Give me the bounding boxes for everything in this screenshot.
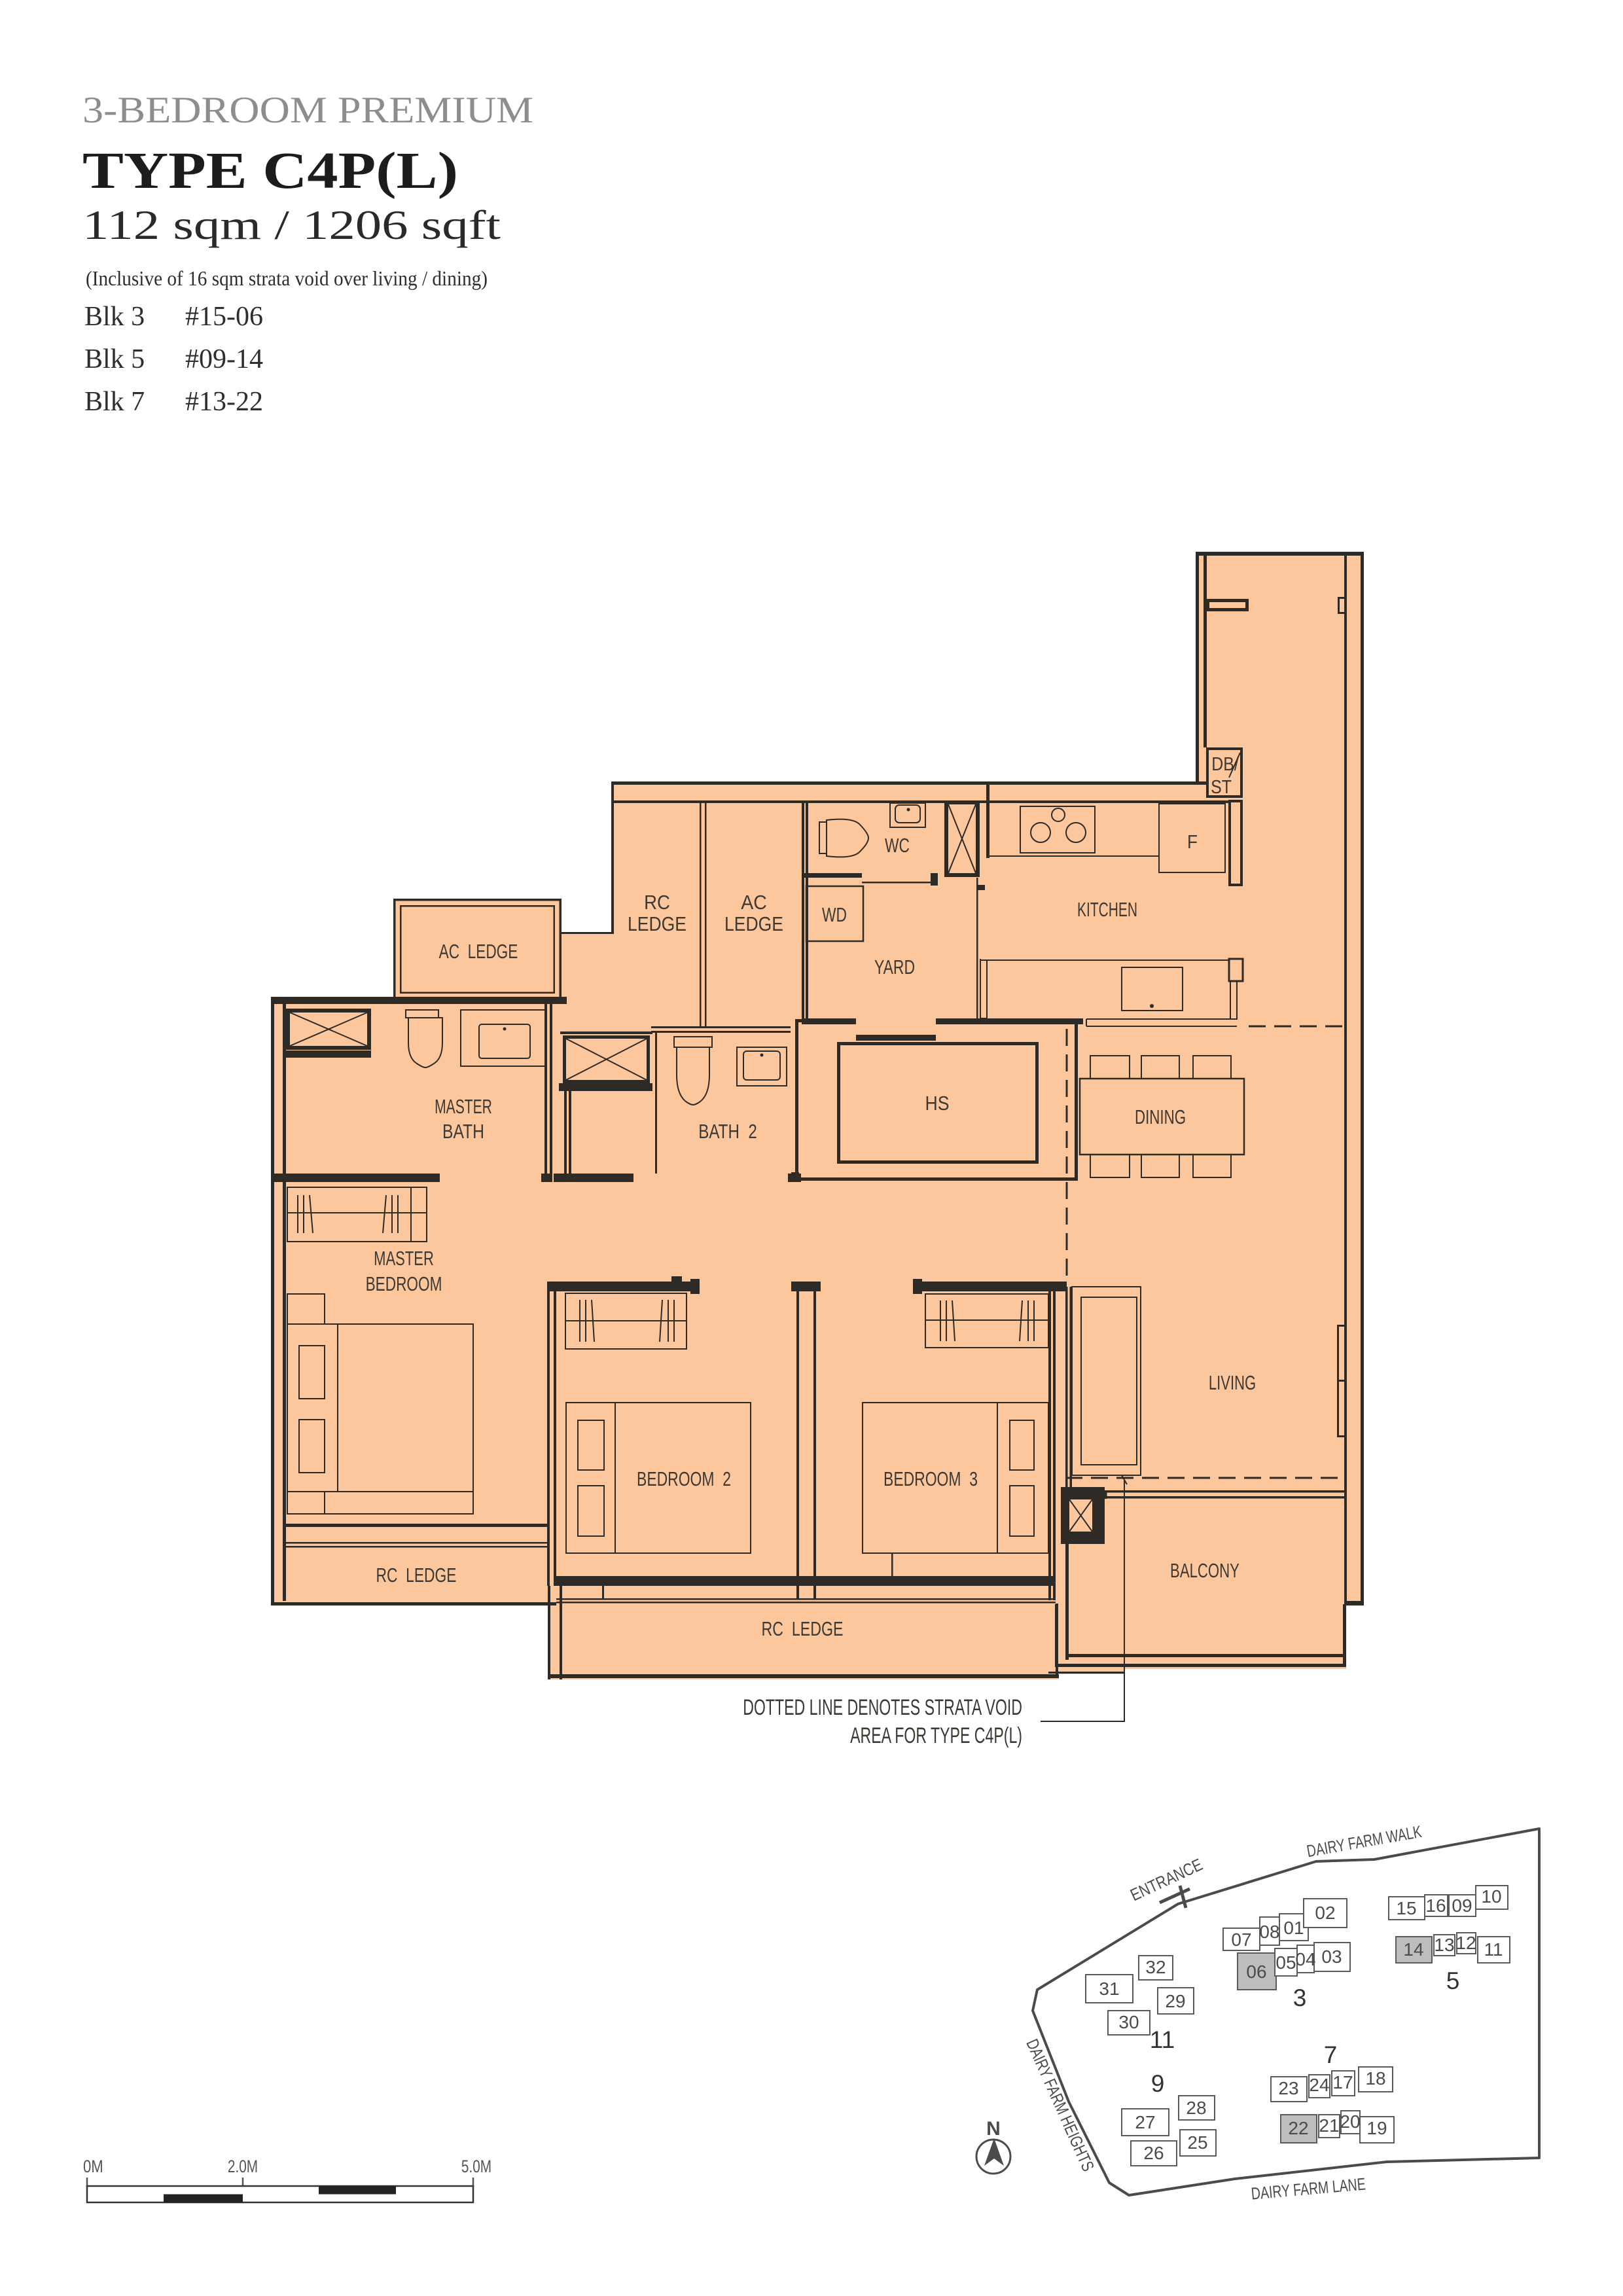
svg-text:03: 03: [1321, 1946, 1342, 1967]
svg-text:04: 04: [1295, 1949, 1315, 1969]
svg-text:F: F: [1187, 831, 1198, 853]
svg-text:22: 22: [1288, 2118, 1308, 2138]
svg-text:20: 20: [1340, 2111, 1360, 2132]
svg-text:Blk 5: Blk 5: [84, 344, 145, 374]
svg-text:28: 28: [1186, 2098, 1206, 2118]
svg-text:BEDROOM 2: BEDROOM 2: [637, 1467, 731, 1490]
svg-text:AREA FOR TYPE C4P(L): AREA FOR TYPE C4P(L): [850, 1724, 1022, 1748]
svg-text:AC LEDGE: AC LEDGE: [439, 939, 518, 962]
svg-text:3: 3: [1293, 1984, 1307, 2011]
svg-text:BATH 2: BATH 2: [698, 1120, 757, 1143]
svg-text:BATH: BATH: [442, 1120, 484, 1142]
svg-text:3-BEDROOM PREMIUM: 3-BEDROOM PREMIUM: [82, 90, 533, 131]
svg-text:24: 24: [1309, 2075, 1329, 2095]
svg-text:2.0M: 2.0M: [228, 2157, 258, 2176]
svg-text:11: 11: [1484, 1939, 1503, 1960]
svg-text:LIVING: LIVING: [1209, 1371, 1256, 1394]
svg-text:Blk 7: Blk 7: [84, 387, 145, 417]
svg-text:LEDGE: LEDGE: [628, 913, 687, 935]
svg-text:27: 27: [1135, 2112, 1155, 2132]
svg-text:25: 25: [1187, 2132, 1207, 2153]
svg-text:05: 05: [1275, 1952, 1296, 1973]
svg-text:14: 14: [1403, 1939, 1423, 1960]
svg-text:BALCONY: BALCONY: [1170, 1559, 1240, 1582]
svg-text:19: 19: [1366, 2118, 1387, 2138]
svg-text:7: 7: [1324, 2041, 1338, 2068]
svg-text:29: 29: [1165, 1991, 1185, 2011]
svg-text:HS: HS: [925, 1092, 949, 1115]
svg-text:#13-22: #13-22: [185, 387, 263, 417]
svg-text:09: 09: [1452, 1895, 1472, 1916]
svg-text:BEDROOM: BEDROOM: [366, 1272, 442, 1295]
svg-text:RC LEDGE: RC LEDGE: [762, 1617, 844, 1640]
svg-text:17: 17: [1332, 2072, 1353, 2092]
svg-text:DAIRY FARM LANE: DAIRY FARM LANE: [1251, 2174, 1366, 2204]
svg-text:DOTTED LINE DENOTES STRATA VOI: DOTTED LINE DENOTES STRATA VOID: [743, 1696, 1022, 1720]
svg-text:WC: WC: [885, 834, 910, 857]
svg-text:26: 26: [1143, 2143, 1164, 2163]
svg-text:5: 5: [1446, 1967, 1460, 1994]
svg-text:Blk 3: Blk 3: [84, 302, 145, 332]
svg-text:10: 10: [1481, 1886, 1501, 1907]
svg-text:#15-06: #15-06: [185, 302, 263, 332]
svg-text:RC LEDGE: RC LEDGE: [376, 1564, 457, 1587]
svg-text:30: 30: [1118, 2012, 1139, 2032]
svg-text:21: 21: [1319, 2115, 1339, 2136]
svg-text:12: 12: [1455, 1933, 1476, 1953]
svg-text:MASTER: MASTER: [435, 1095, 492, 1118]
svg-text:YARD: YARD: [874, 956, 915, 978]
svg-text:AC: AC: [741, 891, 767, 914]
svg-text:23: 23: [1278, 2078, 1298, 2098]
svg-text:32: 32: [1145, 1957, 1166, 1977]
svg-text:ENTRANCE: ENTRANCE: [1128, 1855, 1205, 1905]
svg-text:MASTER: MASTER: [374, 1247, 434, 1270]
svg-text:9: 9: [1151, 2070, 1165, 2097]
svg-text:#09-14: #09-14: [185, 344, 263, 374]
svg-text:02: 02: [1315, 1903, 1335, 1923]
svg-text:(Inclusive of 16 sqm strata vo: (Inclusive of 16 sqm strata void over li…: [86, 266, 488, 290]
svg-text:N: N: [986, 2118, 1001, 2140]
svg-text:BEDROOM 3: BEDROOM 3: [883, 1467, 978, 1490]
svg-text:DINING: DINING: [1135, 1105, 1186, 1128]
svg-text:5.0M: 5.0M: [461, 2157, 491, 2176]
svg-text:18: 18: [1365, 2068, 1385, 2089]
svg-text:LEDGE: LEDGE: [724, 913, 783, 935]
svg-text:112 sqm / 1206 sqft: 112 sqm / 1206 sqft: [82, 202, 501, 248]
svg-text:15: 15: [1396, 1898, 1416, 1918]
svg-text:ST: ST: [1211, 776, 1232, 797]
svg-text:TYPE C4P(L): TYPE C4P(L): [82, 143, 458, 200]
svg-text:13: 13: [1434, 1935, 1454, 1955]
svg-text:31: 31: [1099, 1979, 1119, 1999]
svg-text:16: 16: [1425, 1895, 1446, 1916]
svg-text:06: 06: [1246, 1962, 1266, 1982]
svg-text:0M: 0M: [83, 2157, 103, 2177]
svg-text:11: 11: [1150, 2026, 1175, 2053]
svg-text:07: 07: [1231, 1929, 1251, 1950]
svg-text:DAIRY FARM HEIGHTS: DAIRY FARM HEIGHTS: [1023, 2036, 1098, 2174]
svg-text:08: 08: [1259, 1922, 1279, 1942]
svg-text:01: 01: [1283, 1918, 1304, 1938]
svg-text:WD: WD: [822, 903, 847, 926]
svg-text:KITCHEN: KITCHEN: [1077, 898, 1137, 921]
svg-text:RC: RC: [644, 891, 670, 914]
